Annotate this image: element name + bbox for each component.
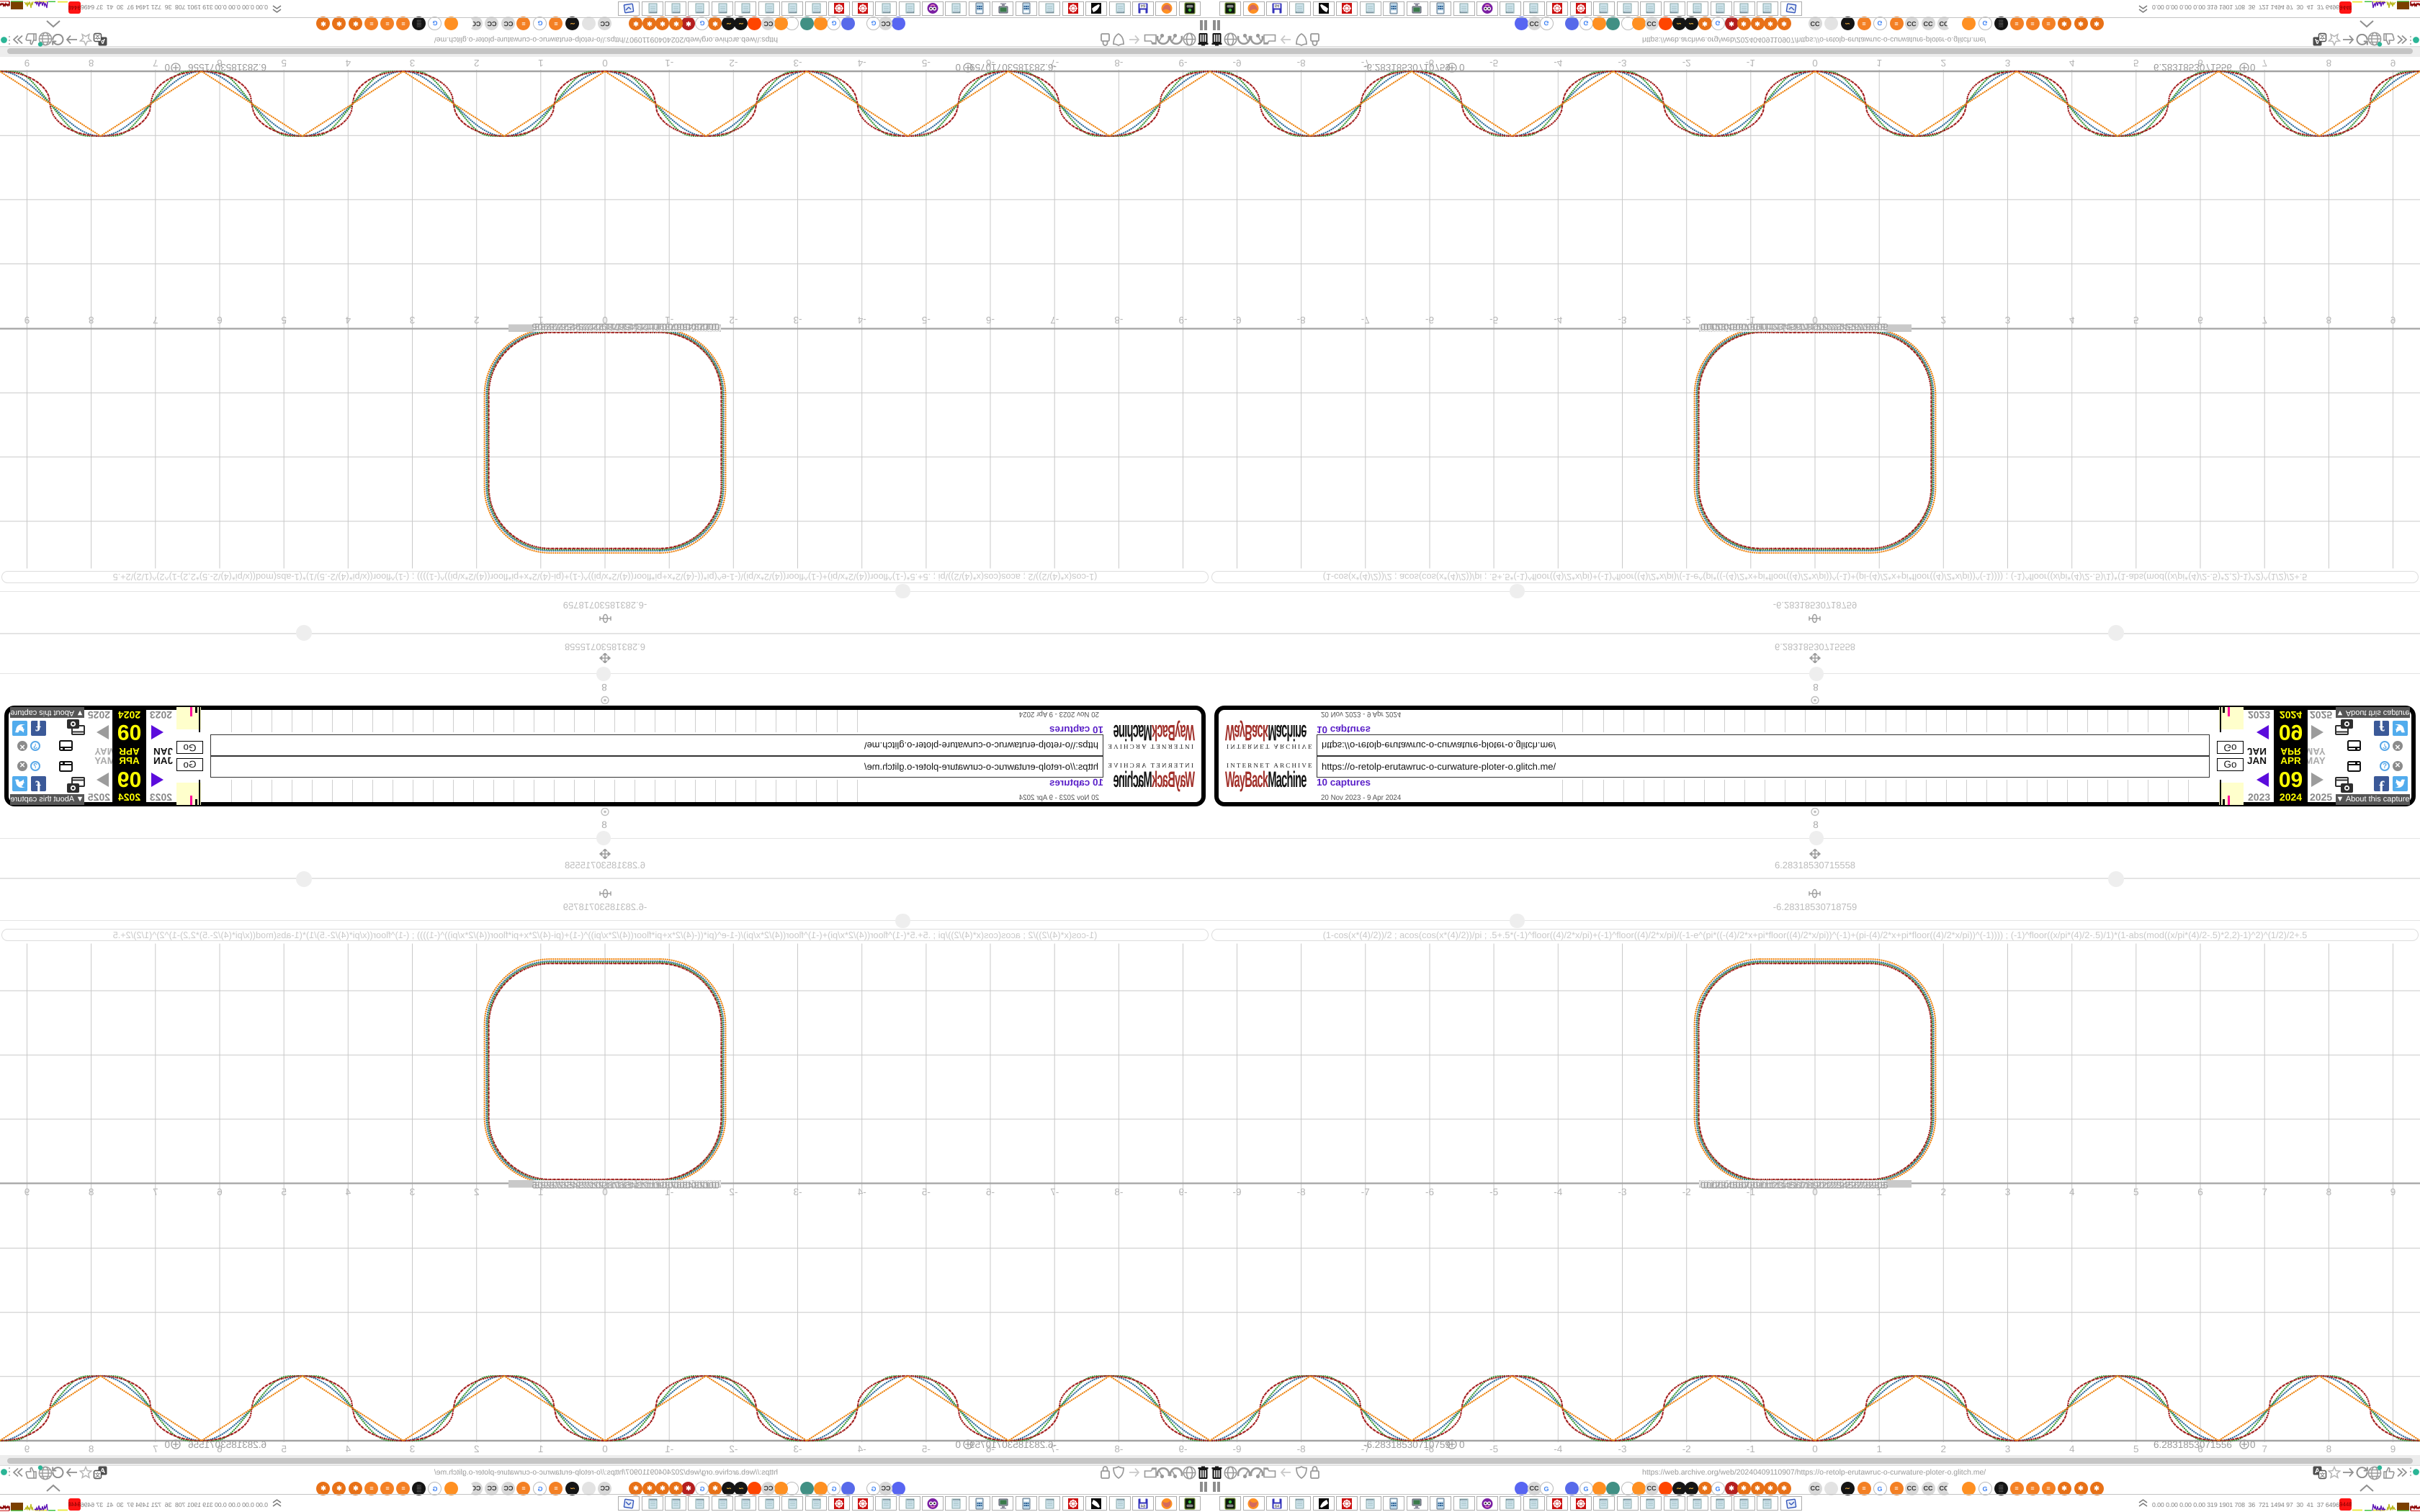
svg-text:文: 文 (2320, 1472, 2326, 1479)
svg-text:-3: -3 (793, 315, 802, 325)
svg-text:2: 2 (1941, 1444, 1947, 1454)
svg-text:9: 9 (24, 315, 30, 325)
svg-text:-7: -7 (1361, 1187, 1370, 1197)
svg-text:7: 7 (2262, 315, 2267, 325)
svg-text:-4: -4 (857, 1444, 866, 1454)
svg-text:3: 3 (410, 315, 416, 325)
svg-text:-9: -9 (1232, 315, 1241, 325)
svg-text:-7: -7 (1361, 315, 1370, 325)
svg-text:-5: -5 (922, 58, 931, 68)
svg-text:6: 6 (2197, 315, 2203, 325)
svg-text:-9: -9 (1178, 58, 1187, 68)
svg-text:0.00.10.20.30.40.50.60.70.80.9: 0.00.10.20.30.40.50.60.70.80.91.01.11.21… (532, 1181, 720, 1191)
svg-text:5: 5 (2133, 58, 2139, 68)
svg-text:7: 7 (153, 58, 158, 68)
svg-text:4: 4 (345, 1444, 351, 1454)
svg-text:9: 9 (24, 1187, 30, 1197)
svg-text:-8: -8 (1114, 1444, 1123, 1454)
svg-text:-4: -4 (857, 315, 866, 325)
svg-text:-5: -5 (1489, 315, 1498, 325)
svg-text:-1: -1 (665, 1444, 673, 1454)
svg-text:-2: -2 (1682, 315, 1691, 325)
svg-text:4: 4 (2069, 1444, 2075, 1454)
svg-text:6.2831853071556: 6.2831853071556 (188, 62, 266, 73)
svg-text:-8: -8 (1297, 315, 1306, 325)
svg-text:-1: -1 (1747, 58, 1755, 68)
svg-text:-4: -4 (1554, 1187, 1562, 1197)
svg-text:-4: -4 (857, 1187, 866, 1197)
svg-text:8: 8 (2326, 1444, 2332, 1454)
svg-text:-3: -3 (793, 1444, 802, 1454)
svg-text:2: 2 (474, 315, 480, 325)
svg-text:5: 5 (2133, 1444, 2139, 1454)
svg-text:64: 64 (1275, 4, 1279, 8)
svg-text:1: 1 (1876, 1444, 1882, 1454)
svg-text:2: 2 (474, 1187, 480, 1197)
svg-text:-9: -9 (1178, 1187, 1187, 1197)
svg-text:-2: -2 (729, 58, 738, 68)
svg-text:6.2831853071556: 6.2831853071556 (188, 1439, 266, 1450)
svg-text:5: 5 (281, 58, 287, 68)
svg-text:-6.28318530710759: -6.28318530710759 (969, 62, 1057, 73)
svg-text:0.00.10.20.30.40.50.60.70.80.9: 0.00.10.20.30.40.50.60.70.80.91.01.11.21… (532, 322, 720, 332)
svg-text:2: 2 (1941, 1187, 1947, 1197)
svg-text:8: 8 (89, 1444, 94, 1454)
svg-text:-8: -8 (1114, 1187, 1123, 1197)
svg-text:4: 4 (345, 1187, 351, 1197)
svg-text:-2: -2 (1682, 1187, 1691, 1197)
svg-text:-9: -9 (1232, 1187, 1241, 1197)
svg-text:8: 8 (2326, 58, 2332, 68)
svg-text:64: 64 (1141, 4, 1145, 8)
svg-text:64: 64 (1141, 1504, 1145, 1508)
svg-text:-5: -5 (922, 1444, 931, 1454)
svg-text:-5: -5 (922, 1187, 931, 1197)
svg-text:-3: -3 (1618, 1444, 1626, 1454)
svg-text:-5: -5 (1489, 1444, 1498, 1454)
svg-text:-2: -2 (1682, 58, 1691, 68)
svg-text:-8: -8 (1114, 58, 1123, 68)
svg-text:-4: -4 (857, 58, 866, 68)
svg-text:-7: -7 (1050, 1187, 1059, 1197)
svg-text:-6.28318530710759: -6.28318530710759 (969, 1439, 1057, 1450)
svg-text:5: 5 (281, 315, 287, 325)
svg-text:5: 5 (2133, 315, 2139, 325)
svg-text:-2: -2 (729, 1444, 738, 1454)
svg-text:7: 7 (2262, 1444, 2267, 1454)
svg-text:0: 0 (955, 62, 961, 73)
svg-text:1: 1 (538, 58, 544, 68)
svg-text:-3: -3 (1618, 1187, 1626, 1197)
svg-text:2: 2 (1941, 58, 1947, 68)
svg-text:3: 3 (2005, 58, 2011, 68)
svg-text:5: 5 (2133, 1187, 2139, 1197)
svg-text:9: 9 (2390, 1444, 2396, 1454)
svg-text:9: 9 (24, 58, 30, 68)
svg-text:6.2831853071556: 6.2831853071556 (2154, 1439, 2232, 1450)
svg-text:-5: -5 (922, 315, 931, 325)
svg-text:64: 64 (1275, 1504, 1279, 1508)
svg-text:0.00.10.20.30.40.50.60.70.80.9: 0.00.10.20.30.40.50.60.70.80.91.01.11.21… (1700, 1181, 1888, 1191)
svg-text:-4: -4 (1554, 1444, 1562, 1454)
svg-text:6: 6 (2197, 1187, 2203, 1197)
svg-text:-3: -3 (1618, 58, 1626, 68)
svg-text:7: 7 (2262, 58, 2267, 68)
svg-text:-8: -8 (1297, 1187, 1306, 1197)
svg-text:文: 文 (95, 34, 101, 40)
svg-text:3: 3 (2005, 315, 2011, 325)
svg-text:9: 9 (2390, 1187, 2396, 1197)
svg-text:4: 4 (345, 315, 351, 325)
svg-text:9: 9 (2390, 58, 2396, 68)
svg-text:3: 3 (2005, 1444, 2011, 1454)
svg-text:6.2831853071556: 6.2831853071556 (2154, 62, 2232, 73)
svg-text:0: 0 (1812, 58, 1818, 68)
svg-text:1: 1 (538, 1444, 544, 1454)
svg-text:-9: -9 (1232, 1444, 1241, 1454)
svg-text:0: 0 (2250, 1439, 2256, 1450)
svg-text:2: 2 (1941, 315, 1947, 325)
svg-text:-6: -6 (986, 1187, 995, 1197)
svg-text:0: 0 (602, 1444, 608, 1454)
svg-text:-5: -5 (1489, 1187, 1498, 1197)
svg-text:0: 0 (1812, 1444, 1818, 1454)
svg-text:-8: -8 (1114, 315, 1123, 325)
svg-text:0: 0 (1459, 62, 1465, 73)
svg-text:3: 3 (410, 1187, 416, 1197)
svg-text:-4: -4 (1554, 315, 1562, 325)
svg-text:4: 4 (2069, 315, 2075, 325)
svg-text:0: 0 (1459, 1439, 1465, 1450)
svg-text:文: 文 (95, 1472, 101, 1479)
svg-text:0: 0 (955, 1439, 961, 1450)
svg-text:5: 5 (281, 1187, 287, 1197)
svg-text:3: 3 (410, 58, 416, 68)
svg-text:8: 8 (89, 315, 94, 325)
svg-text:-6: -6 (986, 315, 995, 325)
svg-text:文: 文 (2320, 34, 2326, 40)
svg-text:-3: -3 (793, 58, 802, 68)
svg-text:4: 4 (2069, 1187, 2075, 1197)
svg-text:-8: -8 (1297, 1444, 1306, 1454)
svg-text:-6: -6 (1425, 1187, 1434, 1197)
svg-text:-7: -7 (1050, 315, 1059, 325)
svg-text:-4: -4 (1554, 58, 1562, 68)
svg-text:7: 7 (2262, 1187, 2267, 1197)
svg-text:7: 7 (153, 1444, 158, 1454)
svg-text:7: 7 (153, 315, 158, 325)
svg-text:0: 0 (602, 58, 608, 68)
svg-text:1: 1 (1876, 58, 1882, 68)
svg-text:-9: -9 (1232, 58, 1241, 68)
svg-text:-3: -3 (1618, 315, 1626, 325)
svg-text:5: 5 (281, 1444, 287, 1454)
svg-text:-1: -1 (1747, 1444, 1755, 1454)
svg-text:-2: -2 (729, 1187, 738, 1197)
svg-text:2: 2 (474, 1444, 480, 1454)
svg-text:7: 7 (153, 1187, 158, 1197)
svg-text:4: 4 (2069, 58, 2075, 68)
svg-text:-1: -1 (665, 58, 673, 68)
svg-text:0: 0 (164, 62, 170, 73)
svg-text:8: 8 (89, 58, 94, 68)
svg-text:-9: -9 (1178, 315, 1187, 325)
svg-text:-6: -6 (1425, 315, 1434, 325)
svg-text:6: 6 (217, 1187, 223, 1197)
svg-text:-2: -2 (1682, 1444, 1691, 1454)
svg-text:0: 0 (164, 1439, 170, 1450)
svg-text:8: 8 (89, 1187, 94, 1197)
svg-text:3: 3 (2005, 1187, 2011, 1197)
svg-text:-8: -8 (1297, 58, 1306, 68)
svg-text:8: 8 (2326, 1187, 2332, 1197)
svg-text:-3: -3 (793, 1187, 802, 1197)
svg-text:-6.28318530710759: -6.28318530710759 (1363, 62, 1451, 73)
svg-text:8: 8 (2326, 315, 2332, 325)
svg-text:4: 4 (345, 58, 351, 68)
svg-text:3: 3 (410, 1444, 416, 1454)
svg-text:-5: -5 (1489, 58, 1498, 68)
svg-text:0: 0 (2250, 62, 2256, 73)
svg-text:-2: -2 (729, 315, 738, 325)
svg-text:9: 9 (2390, 315, 2396, 325)
svg-text:6: 6 (217, 315, 223, 325)
svg-text:-6.28318530710759: -6.28318530710759 (1363, 1439, 1451, 1450)
svg-text:0.00.10.20.30.40.50.60.70.80.9: 0.00.10.20.30.40.50.60.70.80.91.01.11.21… (1700, 322, 1888, 332)
svg-text:9: 9 (24, 1444, 30, 1454)
svg-text:2: 2 (474, 58, 480, 68)
svg-text:-9: -9 (1178, 1444, 1187, 1454)
